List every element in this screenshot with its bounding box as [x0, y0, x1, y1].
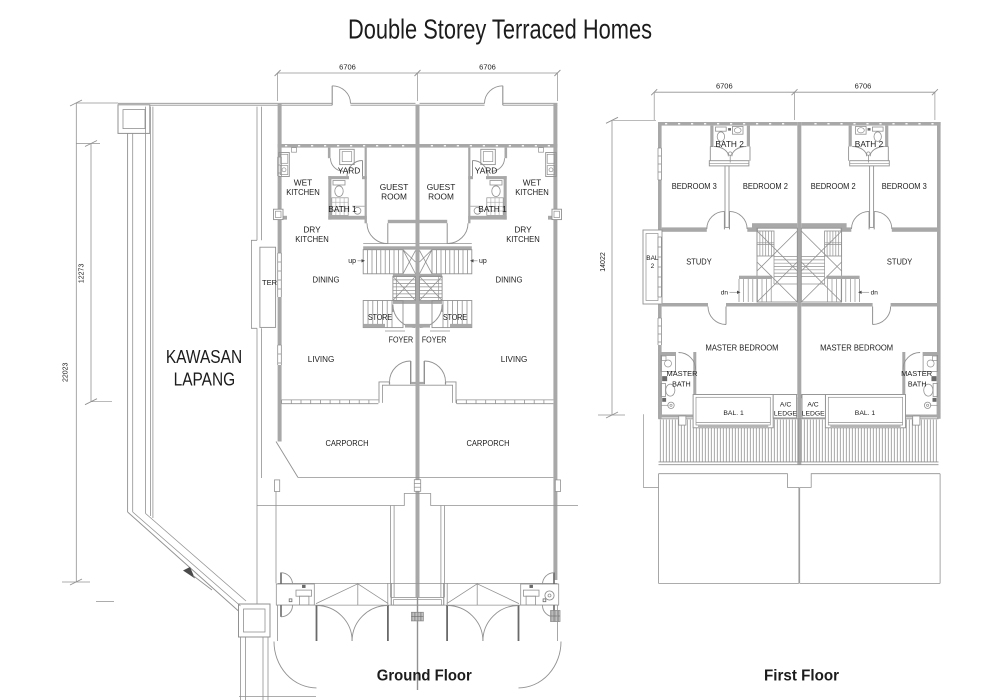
- svg-text:DINING: DINING: [313, 275, 340, 285]
- svg-text:6706: 6706: [339, 63, 356, 72]
- svg-text:BATH 1: BATH 1: [478, 204, 507, 214]
- svg-text:BATH: BATH: [672, 380, 691, 389]
- svg-text:6706: 6706: [855, 82, 872, 91]
- svg-text:6706: 6706: [716, 82, 733, 91]
- svg-text:LIVING: LIVING: [308, 354, 335, 364]
- svg-text:Ground Floor: Ground Floor: [377, 668, 472, 685]
- svg-text:12273: 12273: [79, 264, 86, 284]
- svg-text:YARD: YARD: [338, 166, 360, 176]
- svg-text:GUEST: GUEST: [427, 182, 456, 192]
- svg-text:BAL. 1: BAL. 1: [723, 410, 744, 417]
- svg-text:BATH 2: BATH 2: [715, 139, 744, 149]
- svg-text:MASTER BEDROOM: MASTER BEDROOM: [820, 343, 893, 353]
- svg-text:22023: 22023: [63, 362, 70, 382]
- svg-text:LEDGE: LEDGE: [774, 411, 798, 418]
- svg-text:FOYER: FOYER: [422, 335, 447, 345]
- svg-text:KAWASAN: KAWASAN: [166, 346, 242, 367]
- svg-text:2: 2: [651, 263, 655, 270]
- svg-text:BEDROOM 2: BEDROOM 2: [743, 181, 788, 191]
- svg-text:up: up: [348, 258, 356, 265]
- svg-text:FOYER: FOYER: [389, 335, 414, 345]
- svg-text:LEDGE: LEDGE: [802, 411, 826, 418]
- svg-text:KITCHEN: KITCHEN: [515, 187, 549, 197]
- svg-text:ROOM: ROOM: [428, 192, 454, 202]
- svg-text:CARPORCH: CARPORCH: [467, 438, 510, 448]
- svg-text:Double Storey Terraced Homes: Double Storey Terraced Homes: [348, 14, 652, 45]
- svg-text:BAL: BAL: [646, 255, 659, 262]
- svg-text:dn: dn: [871, 290, 879, 297]
- svg-text:KITCHEN: KITCHEN: [295, 234, 329, 244]
- svg-text:First Floor: First Floor: [764, 668, 839, 685]
- svg-text:GUEST: GUEST: [380, 182, 409, 192]
- svg-text:TER: TER: [262, 278, 278, 287]
- svg-text:A/C: A/C: [780, 402, 791, 409]
- svg-text:STUDY: STUDY: [887, 257, 913, 267]
- svg-text:CARPORCH: CARPORCH: [326, 438, 369, 448]
- svg-text:14022: 14022: [600, 252, 607, 272]
- svg-text:BEDROOM 2: BEDROOM 2: [811, 181, 856, 191]
- svg-text:DINING: DINING: [496, 275, 523, 285]
- svg-text:up: up: [479, 258, 487, 265]
- svg-text:BAL. 1: BAL. 1: [855, 410, 876, 417]
- svg-text:BEDROOM 3: BEDROOM 3: [882, 181, 927, 191]
- svg-text:BATH 2: BATH 2: [855, 139, 884, 149]
- svg-text:STORE: STORE: [443, 312, 467, 322]
- svg-text:A/C: A/C: [807, 402, 818, 409]
- svg-text:YARD: YARD: [475, 166, 497, 176]
- svg-text:6706: 6706: [479, 63, 496, 72]
- svg-text:dn: dn: [721, 290, 729, 297]
- svg-text:BEDROOM 3: BEDROOM 3: [672, 181, 717, 191]
- svg-text:ROOM: ROOM: [381, 192, 407, 202]
- svg-text:MASTER BEDROOM: MASTER BEDROOM: [706, 343, 779, 353]
- svg-text:MASTER: MASTER: [901, 369, 932, 378]
- svg-text:STORE: STORE: [368, 312, 392, 322]
- svg-text:KITCHEN: KITCHEN: [506, 234, 540, 244]
- svg-text:MASTER: MASTER: [667, 369, 698, 378]
- svg-text:LAPANG: LAPANG: [174, 368, 236, 389]
- svg-text:BATH: BATH: [908, 380, 927, 389]
- svg-text:KITCHEN: KITCHEN: [286, 187, 320, 197]
- svg-text:STUDY: STUDY: [686, 257, 712, 267]
- svg-text:BATH 1: BATH 1: [328, 204, 357, 214]
- svg-text:LIVING: LIVING: [501, 354, 528, 364]
